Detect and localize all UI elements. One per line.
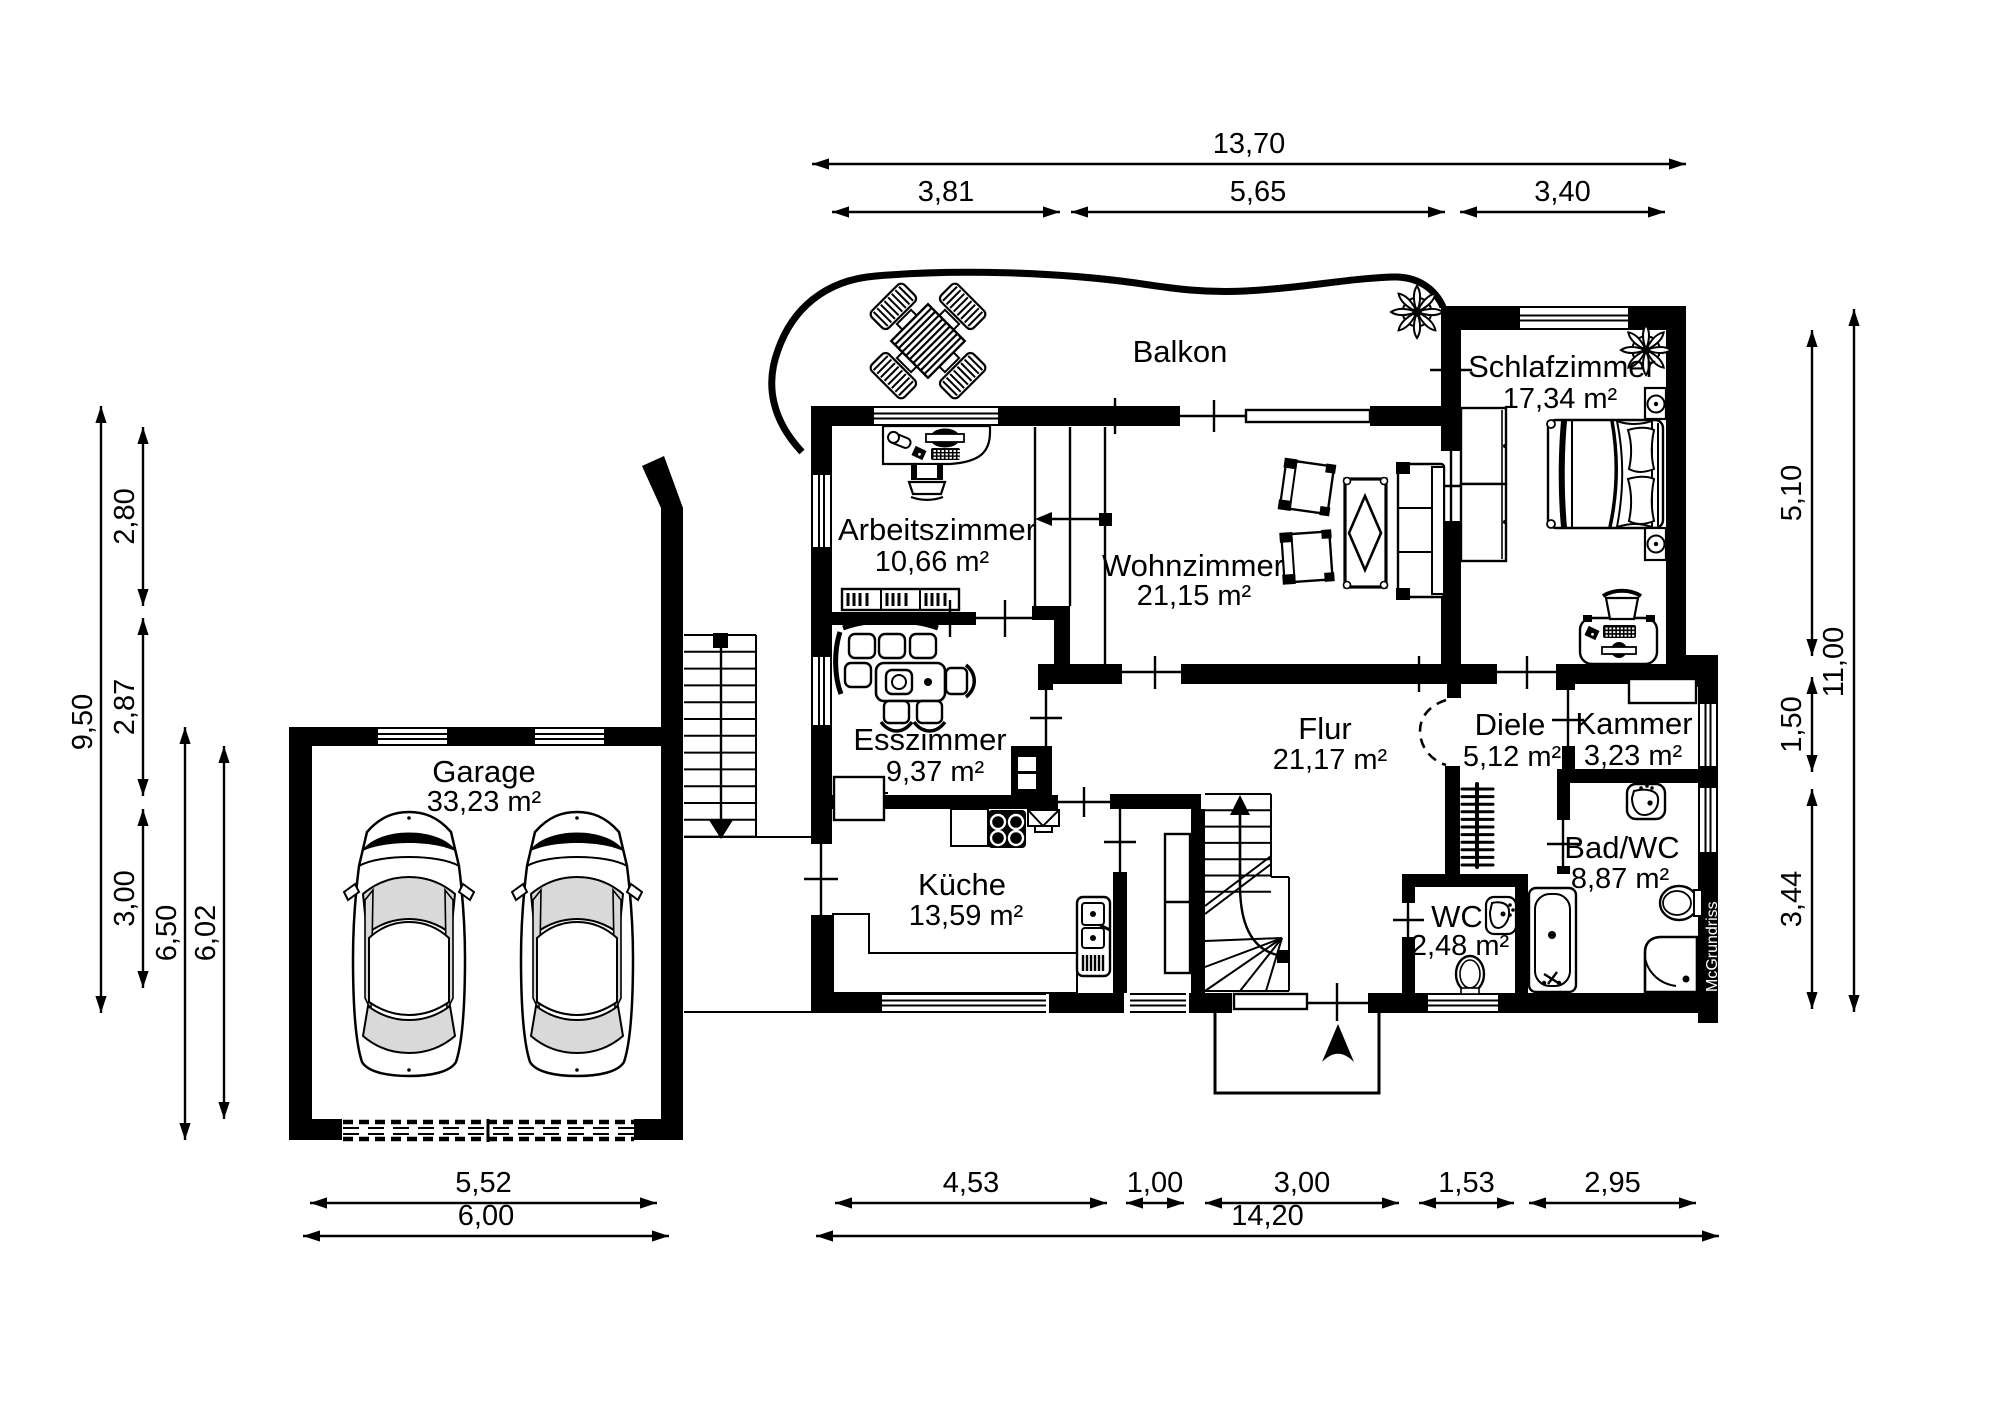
- svg-text:Schlafzimmer: Schlafzimmer: [1468, 349, 1656, 384]
- svg-text:11,00: 11,00: [1818, 627, 1850, 697]
- svg-text:6,50: 6,50: [151, 905, 183, 961]
- svg-text:13,70: 13,70: [1213, 128, 1286, 160]
- svg-text:Flur: Flur: [1298, 711, 1351, 746]
- svg-text:Bad/WC: Bad/WC: [1564, 830, 1679, 865]
- svg-text:2,80: 2,80: [109, 488, 141, 544]
- svg-text:WC: WC: [1431, 899, 1483, 934]
- svg-text:14,20: 14,20: [1231, 1200, 1304, 1232]
- svg-text:1,53: 1,53: [1438, 1167, 1494, 1199]
- svg-text:33,23 m²: 33,23 m²: [427, 786, 542, 818]
- svg-text:Balkon: Balkon: [1133, 334, 1228, 369]
- svg-text:McGrundriss: McGrundriss: [1704, 901, 1721, 992]
- svg-text:2,48 m²: 2,48 m²: [1411, 930, 1510, 962]
- svg-text:17,34 m²: 17,34 m²: [1503, 383, 1618, 415]
- svg-text:1,50: 1,50: [1776, 696, 1808, 752]
- svg-text:5,10: 5,10: [1776, 465, 1808, 521]
- svg-text:3,23 m²: 3,23 m²: [1584, 740, 1683, 772]
- svg-text:3,00: 3,00: [109, 870, 141, 926]
- svg-text:3,81: 3,81: [918, 176, 974, 208]
- svg-text:Diele: Diele: [1475, 707, 1546, 742]
- svg-text:2,87: 2,87: [109, 679, 141, 735]
- svg-text:4,53: 4,53: [943, 1167, 999, 1199]
- svg-text:2,95: 2,95: [1584, 1167, 1640, 1199]
- svg-text:5,52: 5,52: [455, 1167, 511, 1199]
- svg-text:5,65: 5,65: [1230, 176, 1286, 208]
- svg-text:21,15 m²: 21,15 m²: [1137, 580, 1252, 612]
- svg-text:9,50: 9,50: [67, 694, 99, 750]
- svg-text:3,40: 3,40: [1534, 176, 1590, 208]
- svg-text:8,87 m²: 8,87 m²: [1571, 863, 1670, 895]
- svg-text:Wohnzimmer: Wohnzimmer: [1102, 548, 1284, 583]
- svg-text:Kammer: Kammer: [1575, 706, 1692, 741]
- svg-text:1,00: 1,00: [1127, 1167, 1183, 1199]
- svg-text:9,37 m²: 9,37 m²: [886, 756, 985, 788]
- svg-text:13,59 m²: 13,59 m²: [909, 900, 1024, 932]
- svg-text:21,17 m²: 21,17 m²: [1273, 744, 1388, 776]
- svg-text:3,44: 3,44: [1776, 871, 1808, 927]
- svg-text:6,02: 6,02: [190, 905, 222, 961]
- svg-text:6,00: 6,00: [458, 1200, 514, 1232]
- svg-text:Esszimmer: Esszimmer: [853, 722, 1006, 757]
- svg-text:Arbeitszimmer: Arbeitszimmer: [838, 512, 1036, 547]
- svg-text:Garage: Garage: [432, 754, 535, 789]
- svg-text:Küche: Küche: [918, 867, 1006, 902]
- svg-text:5,12 m²: 5,12 m²: [1463, 741, 1562, 773]
- svg-text:3,00: 3,00: [1274, 1167, 1330, 1199]
- svg-text:10,66 m²: 10,66 m²: [875, 546, 990, 578]
